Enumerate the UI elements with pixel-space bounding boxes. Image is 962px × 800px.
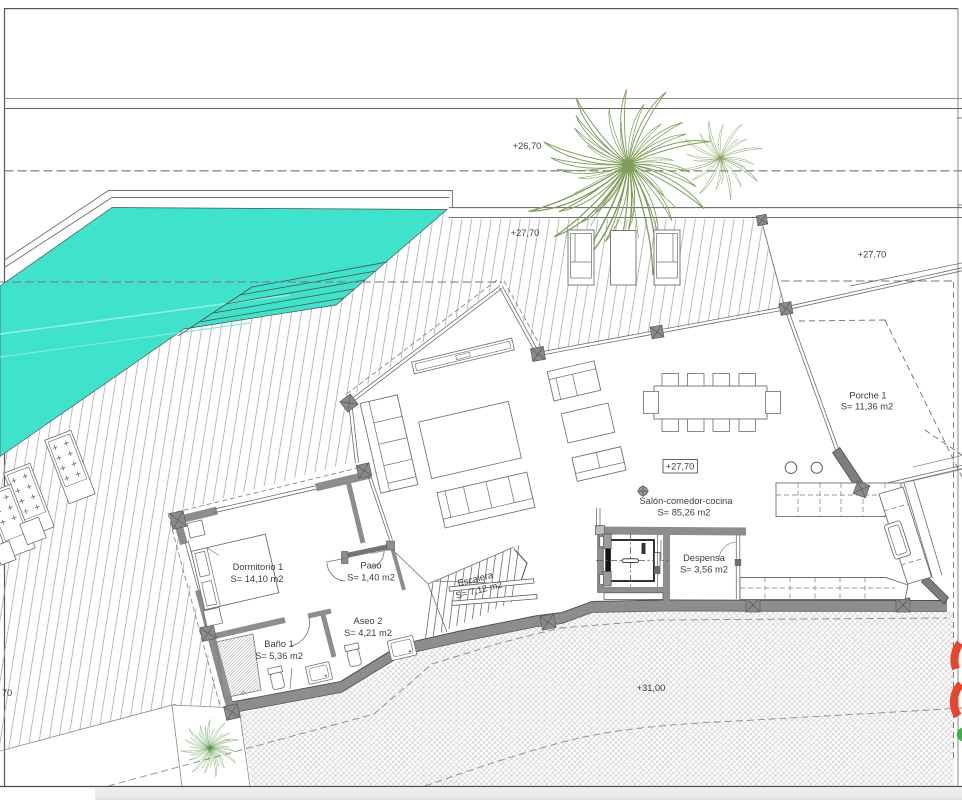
svg-text:Paso: Paso xyxy=(360,561,381,571)
svg-text:Baño 1: Baño 1 xyxy=(264,639,293,649)
svg-text:+26,70: +26,70 xyxy=(513,141,542,151)
svg-text:+27,70: +27,70 xyxy=(666,462,695,472)
svg-text:S= 4,21 m2: S= 4,21 m2 xyxy=(344,628,392,638)
svg-text:S= 5,36 m2: S= 5,36 m2 xyxy=(255,651,303,661)
svg-text:S= 11,36 m2: S= 11,36 m2 xyxy=(841,402,893,412)
svg-text:Porche 1: Porche 1 xyxy=(849,391,886,401)
svg-text:Despensa: Despensa xyxy=(683,553,726,563)
svg-text:Aseo 2: Aseo 2 xyxy=(354,616,383,626)
svg-text:+27,70: +27,70 xyxy=(511,228,540,238)
svg-text:Dormitorio 1: Dormitorio 1 xyxy=(233,562,284,572)
svg-text:Salón-comedor-cocina: Salón-comedor-cocina xyxy=(639,496,733,506)
svg-text:S= 3,56 m2: S= 3,56 m2 xyxy=(680,565,728,575)
svg-text:S= 14,10 m2: S= 14,10 m2 xyxy=(231,574,284,584)
svg-text:S= 85,26 m2: S= 85,26 m2 xyxy=(658,508,711,518)
svg-text:+31,00: +31,00 xyxy=(637,683,666,693)
svg-text:S= 1,40 m2: S= 1,40 m2 xyxy=(347,573,395,583)
svg-text:+27,70: +27,70 xyxy=(858,250,887,260)
svg-text:70: 70 xyxy=(2,688,12,698)
